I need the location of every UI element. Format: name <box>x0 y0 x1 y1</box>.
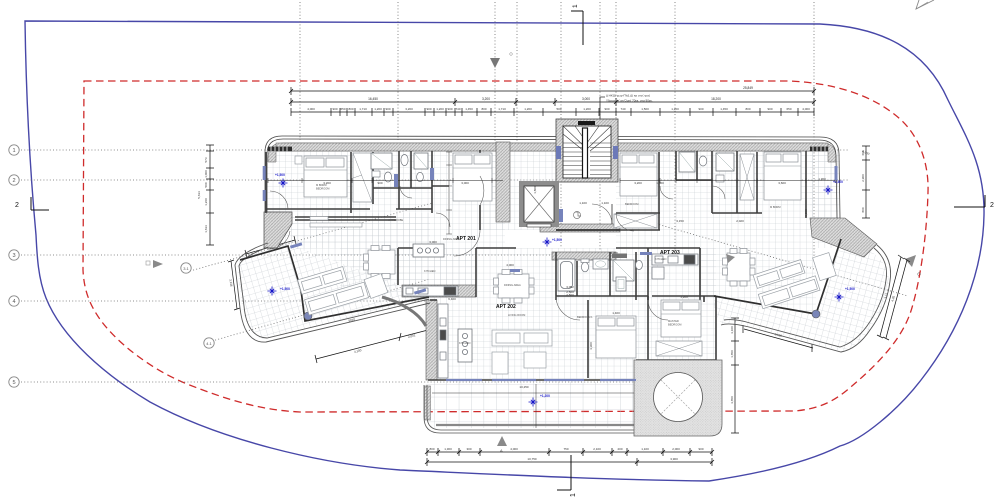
svg-text:1,710: 1,710 <box>498 107 506 111</box>
svg-text:KITCHEN: KITCHEN <box>655 257 667 261</box>
svg-text:6,400: 6,400 <box>448 297 456 301</box>
svg-text:1,633: 1,633 <box>204 225 208 233</box>
svg-text:APT 202: APT 202 <box>496 304 516 310</box>
svg-text:3,650: 3,650 <box>730 396 734 404</box>
svg-text:+1,500: +1,500 <box>275 173 285 177</box>
svg-text:Δ ΗKΩ( χωρ-ΓΝΔ.Δ( κα ση-( τρα(: Δ ΗKΩ( χωρ-ΓΝΔ.Δ( κα ση-( τρα( <box>606 94 650 98</box>
svg-text:800: 800 <box>861 207 865 212</box>
svg-text:3,052: 3,052 <box>566 285 574 289</box>
svg-text:1,200: 1,200 <box>374 107 382 111</box>
svg-text:1,200: 1,200 <box>680 295 688 299</box>
svg-text:740: 740 <box>620 107 625 111</box>
svg-text:+1,500: +1,500 <box>833 180 843 184</box>
svg-text:4: 4 <box>12 299 15 305</box>
svg-text:+1,500: +1,500 <box>280 287 290 291</box>
svg-text:650: 650 <box>786 107 791 111</box>
svg-text:3,200: 3,200 <box>405 107 413 111</box>
svg-text:3,000: 3,000 <box>429 240 437 244</box>
svg-text:4,000: 4,000 <box>307 107 315 111</box>
svg-text:1,300: 1,300 <box>444 447 452 451</box>
svg-text:5: 5 <box>12 380 15 386</box>
svg-text:10,250: 10,250 <box>519 385 529 389</box>
svg-text:16,450: 16,450 <box>368 97 378 101</box>
svg-text:900: 900 <box>385 107 390 111</box>
svg-text:KITCHEN: KITCHEN <box>424 269 436 273</box>
svg-text:3,200: 3,200 <box>482 97 490 101</box>
svg-text:800: 800 <box>348 107 353 111</box>
svg-text:800: 800 <box>481 107 486 111</box>
svg-text:300: 300 <box>466 447 471 451</box>
svg-text:573: 573 <box>204 157 208 162</box>
svg-text:1: 1 <box>570 493 577 497</box>
svg-text:18,200: 18,200 <box>711 97 721 101</box>
svg-text:1,710: 1,710 <box>359 107 367 111</box>
svg-text:APT 203: APT 203 <box>660 250 680 256</box>
svg-text:1,650: 1,650 <box>730 350 734 358</box>
svg-text:+1,200: +1,200 <box>540 394 550 398</box>
svg-text:+1,500: +1,500 <box>845 287 855 291</box>
svg-text:1,000: 1,000 <box>204 170 208 178</box>
svg-text:3,100: 3,100 <box>730 326 734 334</box>
svg-text:2: 2 <box>990 202 994 209</box>
svg-text:Yδροχωρ( σκ Όμη( 70ɛκ. στα 90ɛ: Yδροχωρ( σκ Όμη( 70ɛκ. στα 90ɛκ. <box>606 99 653 103</box>
svg-text:1,260: 1,260 <box>204 198 208 206</box>
svg-text:900: 900 <box>377 181 382 185</box>
svg-text:740: 740 <box>455 107 460 111</box>
svg-text:1,800: 1,800 <box>533 186 537 194</box>
svg-text:3: 3 <box>12 253 15 259</box>
svg-text:3,000: 3,000 <box>461 181 469 185</box>
svg-text:BEDROOM 1: BEDROOM 1 <box>577 315 593 319</box>
svg-text:2,500: 2,500 <box>566 290 574 294</box>
svg-text:2,100: 2,100 <box>593 447 601 451</box>
svg-text:1,450: 1,450 <box>720 107 728 111</box>
svg-text:1,200: 1,200 <box>583 107 591 111</box>
svg-text:5,633: 5,633 <box>197 191 201 199</box>
svg-text:3,200: 3,200 <box>634 181 642 185</box>
svg-text:M BDRM: M BDRM <box>770 205 781 209</box>
svg-text:3,000: 3,000 <box>582 97 590 101</box>
svg-text:BEDROOM: BEDROOM <box>625 202 638 206</box>
svg-text:4,000: 4,000 <box>510 447 518 451</box>
svg-text:3,300: 3,300 <box>589 342 593 350</box>
svg-text:2: 2 <box>15 202 19 209</box>
svg-text:1: 1 <box>572 4 579 8</box>
svg-text:1,100: 1,100 <box>641 447 649 451</box>
svg-text:3,150: 3,150 <box>804 209 808 217</box>
svg-text:500: 500 <box>556 107 561 111</box>
svg-text:4,000: 4,000 <box>506 263 514 267</box>
svg-text:800: 800 <box>429 447 434 451</box>
svg-text:800: 800 <box>745 107 750 111</box>
svg-text:900: 900 <box>426 107 431 111</box>
svg-text:DINING AREA: DINING AREA <box>504 283 521 287</box>
svg-text:1,400: 1,400 <box>612 311 620 315</box>
svg-text:1,200: 1,200 <box>436 107 444 111</box>
svg-text:1,100: 1,100 <box>601 201 609 205</box>
svg-text:25,849: 25,849 <box>743 86 753 90</box>
svg-text:3,600: 3,600 <box>778 181 786 185</box>
svg-text:900: 900 <box>767 107 772 111</box>
svg-text:2,900: 2,900 <box>861 174 865 182</box>
svg-text:BEDROOM: BEDROOM <box>316 187 329 191</box>
svg-text:2: 2 <box>12 178 15 184</box>
svg-text:1,100: 1,100 <box>579 201 587 205</box>
svg-text:10,750: 10,750 <box>527 457 537 461</box>
svg-text:650: 650 <box>340 107 345 111</box>
svg-text:1,200: 1,200 <box>671 107 679 111</box>
svg-text:900: 900 <box>698 447 703 451</box>
svg-text:900: 900 <box>332 107 337 111</box>
svg-text:750: 750 <box>563 447 568 451</box>
svg-text:1,500: 1,500 <box>641 107 649 111</box>
svg-text:3,900: 3,900 <box>670 457 678 461</box>
svg-text:MASTER: MASTER <box>668 319 679 323</box>
svg-text:900: 900 <box>447 107 452 111</box>
svg-text:1: 1 <box>12 148 15 154</box>
svg-text:500: 500 <box>204 182 208 187</box>
svg-text:DINING AREA: DINING AREA <box>443 237 460 241</box>
svg-text:1,450: 1,450 <box>465 107 473 111</box>
svg-text:3,200: 3,200 <box>323 181 331 185</box>
svg-text:900: 900 <box>698 107 703 111</box>
svg-text:KITCHEN: KITCHEN <box>459 341 471 345</box>
svg-text:3.1: 3.1 <box>183 266 189 271</box>
svg-text:4,000: 4,000 <box>802 107 810 111</box>
svg-text:900: 900 <box>604 107 609 111</box>
svg-text:2,020: 2,020 <box>736 219 744 223</box>
svg-text:1,200: 1,200 <box>524 107 532 111</box>
svg-text:2,000: 2,000 <box>672 447 680 451</box>
svg-text:200: 200 <box>617 447 622 451</box>
svg-text:BEDROOM: BEDROOM <box>668 323 681 327</box>
svg-text:3,150: 3,150 <box>676 219 684 223</box>
svg-text:4.1: 4.1 <box>206 341 212 346</box>
svg-text:WARDROBE: WARDROBE <box>388 218 403 222</box>
svg-text:+1,500: +1,500 <box>552 238 562 242</box>
svg-text:LIVING ROOM: LIVING ROOM <box>508 313 525 317</box>
